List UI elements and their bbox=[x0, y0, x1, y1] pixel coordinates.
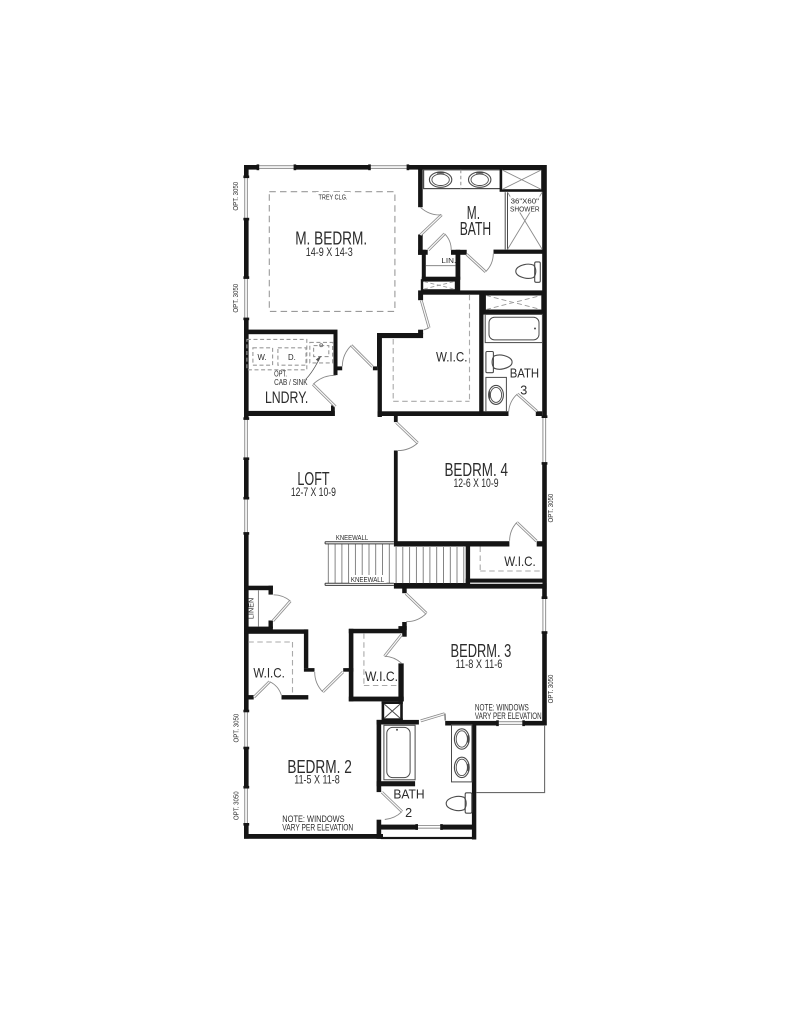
svg-text:OPT. 3050: OPT. 3050 bbox=[546, 494, 555, 523]
svg-text:36"X60": 36"X60" bbox=[511, 198, 540, 205]
svg-text:3: 3 bbox=[520, 383, 527, 397]
svg-text:VARY PER ELEVATION: VARY PER ELEVATION bbox=[282, 822, 353, 833]
svg-text:OPT. 3050: OPT. 3050 bbox=[231, 182, 240, 211]
svg-text:W.I.C.: W.I.C. bbox=[504, 554, 536, 569]
svg-text:OPT. 3050: OPT. 3050 bbox=[232, 791, 241, 820]
svg-text:W.: W. bbox=[257, 353, 266, 362]
svg-text:OPT. 3050: OPT. 3050 bbox=[231, 284, 240, 313]
svg-text:W.I.C.: W.I.C. bbox=[253, 665, 285, 680]
svg-text:LINEN: LINEN bbox=[247, 598, 256, 619]
svg-text:BATH: BATH bbox=[393, 788, 424, 802]
svg-text:11-5 X 11-8: 11-5 X 11-8 bbox=[294, 774, 340, 787]
svg-text:SHOWER: SHOWER bbox=[510, 206, 540, 213]
svg-text:VARY PER ELEVATION: VARY PER ELEVATION bbox=[475, 710, 542, 721]
svg-text:OPT. 3050: OPT. 3050 bbox=[232, 714, 241, 743]
svg-text:BATH: BATH bbox=[460, 219, 491, 239]
svg-text:W.I.C.: W.I.C. bbox=[365, 669, 398, 684]
svg-text:14-9 X 14-3: 14-9 X 14-3 bbox=[306, 246, 353, 259]
svg-text:W.I.C.: W.I.C. bbox=[436, 349, 468, 364]
svg-text:BATH: BATH bbox=[510, 366, 539, 380]
svg-text:LNDRY.: LNDRY. bbox=[265, 389, 308, 407]
svg-text:11-8 X 11-6: 11-8 X 11-6 bbox=[456, 658, 503, 671]
svg-text:2: 2 bbox=[405, 806, 412, 820]
svg-text:KNEEWALL: KNEEWALL bbox=[351, 575, 384, 584]
svg-text:CAB / SINK: CAB / SINK bbox=[274, 378, 308, 387]
svg-text:D.: D. bbox=[288, 353, 296, 362]
svg-text:12-6 X 10-9: 12-6 X 10-9 bbox=[453, 477, 498, 490]
svg-text:OPT. 3050: OPT. 3050 bbox=[546, 675, 555, 704]
svg-text:TREY CLG.: TREY CLG. bbox=[318, 192, 347, 201]
svg-text:KNEEWALL: KNEEWALL bbox=[336, 533, 368, 542]
svg-text:12-7 X 10-9: 12-7 X 10-9 bbox=[291, 486, 336, 499]
svg-text:LIN.: LIN. bbox=[441, 256, 456, 265]
